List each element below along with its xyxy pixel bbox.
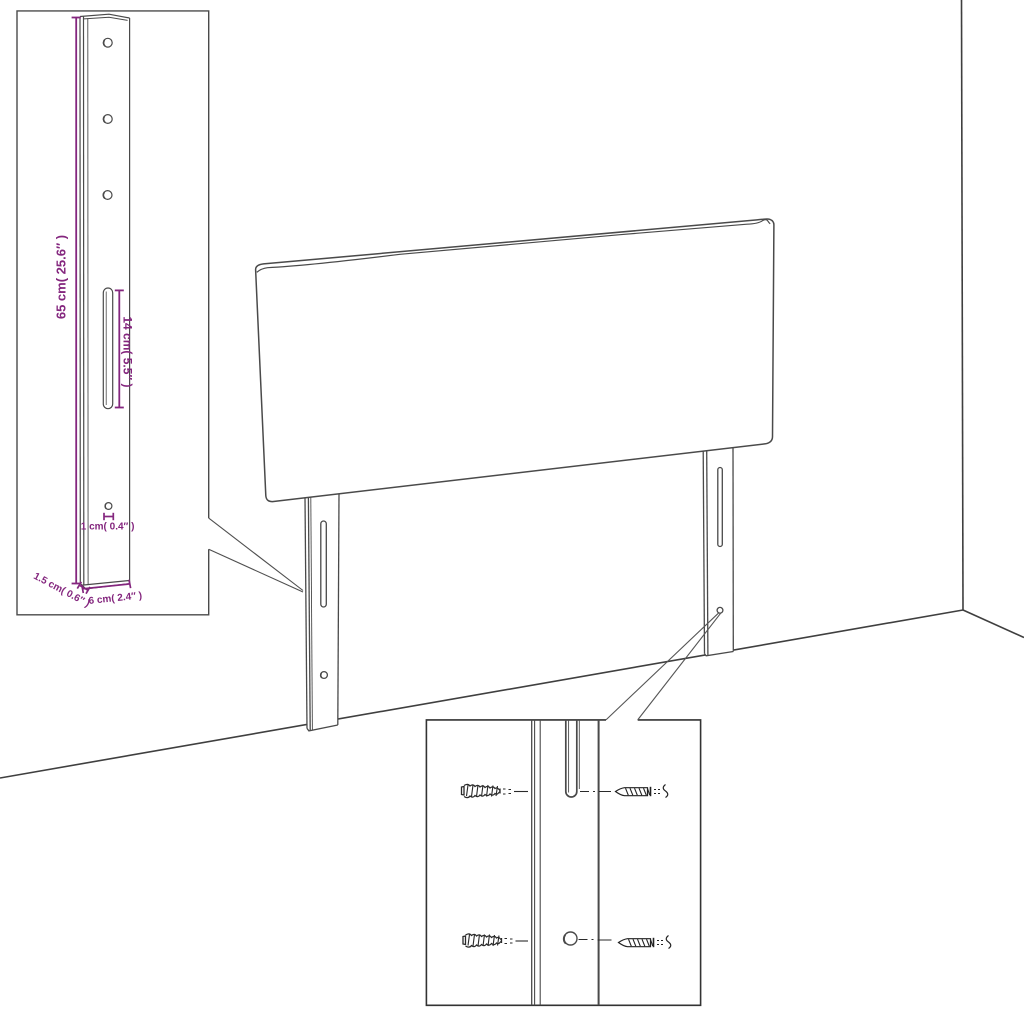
svg-text:65 cm( 25.6″ ): 65 cm( 25.6″ ) <box>54 235 69 319</box>
svg-text:1 cm( 0.4″ ): 1 cm( 0.4″ ) <box>81 522 135 533</box>
svg-text:14 cm( 5.5″ ): 14 cm( 5.5″ ) <box>121 316 135 387</box>
